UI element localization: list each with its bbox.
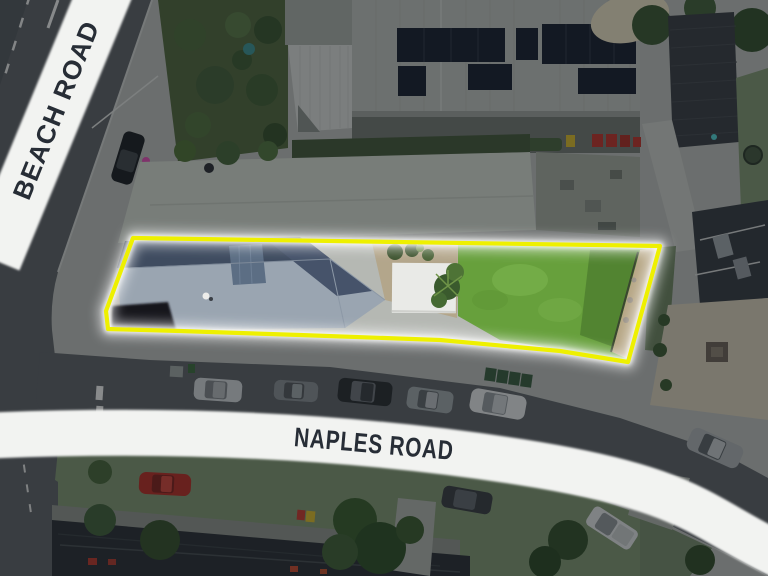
gable-roof — [229, 244, 266, 285]
lawn-patch — [472, 290, 508, 310]
lawn-patch — [538, 298, 582, 322]
roof-vent — [203, 293, 210, 300]
roof-vent-shadow — [209, 297, 213, 301]
aerial-photo-canvas: BEACH ROAD NAPLES ROAD — [0, 0, 768, 576]
lawn-patch — [492, 264, 548, 296]
aerial-photo: BEACH ROAD NAPLES ROAD — [0, 0, 768, 576]
shed-edge — [392, 311, 456, 312]
